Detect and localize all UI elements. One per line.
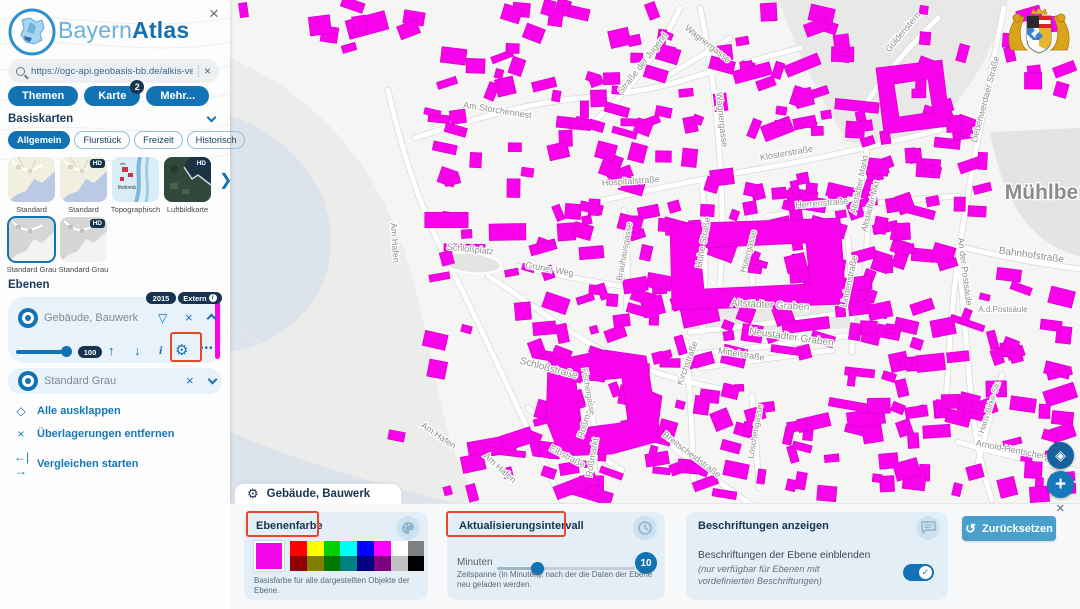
link-label: Überlagerungen entfernen [37,428,175,440]
layer-info-icon[interactable]: i [159,343,162,358]
info-badge-icon: i [209,294,217,302]
basemap-thumb-standard-grau[interactable]: HD [60,217,107,262]
gear-icon: ⚙ [247,486,259,502]
tab-allgemein[interactable]: Allgemein [8,131,70,149]
tab-flurstück[interactable]: Flurstück [74,131,130,149]
basemap-thumb-label: Standard Grau [58,265,110,274]
color-swatch[interactable] [374,541,391,556]
labels-toggle[interactable]: ✓ [903,564,934,581]
color-swatch[interactable] [307,541,324,556]
menu-button-mehr[interactable]: Mehr... [146,86,209,106]
card-title: Ebenenfarbe [256,520,323,532]
extern-badge: Extern i [178,292,222,304]
link-überlagerungen-entfernen[interactable]: ×Überlagerungen entfernen [14,427,175,441]
color-swatch[interactable] [307,556,324,571]
search-bar[interactable]: https://ogc-api.geobasis-bb.de/alkis-ver… [8,59,219,83]
svg-text:tholomä: tholomä [118,185,136,191]
app-title: BayernAtlas [58,17,189,44]
palette-icon [396,516,420,540]
chat-icon [916,516,940,540]
sidebar-close-icon[interactable]: × [209,4,219,24]
color-swatch[interactable] [374,556,391,571]
basemap-tabs: AllgemeinFlurstückFreizeitHistorisch [8,131,245,149]
filter-icon[interactable]: ▽ [158,311,167,325]
panel-tab[interactable]: ⚙ Gebäude, Bauwerk [234,483,402,504]
card-caption: Zeitspanne (in Minuten), nach der die Da… [457,570,657,590]
layer-name: Standard Grau [44,375,116,387]
card-caption: Basisfarbe für alle dargestellten Objekt… [254,576,424,596]
reset-label: Zurücksetzen [982,523,1053,535]
compare-icon: ←|→ [14,450,28,478]
minutes-label: Minuten [457,557,493,568]
expand-layer-icon[interactable] [208,375,218,385]
layer-name: Gebäude, Bauwerk [44,312,138,324]
search-clear-icon[interactable]: × [204,64,211,78]
color-swatch[interactable] [357,556,374,571]
basemap-thumb-label: Standard [6,205,58,214]
color-swatch[interactable] [290,556,307,571]
geolocate-button[interactable]: ◈ [1047,442,1074,469]
opacity-value: 100 [78,346,102,358]
card-ebenenfarbe: Ebenenfarbe Basisfarbe für alle dargeste… [244,512,428,600]
color-swatch[interactable] [340,556,357,571]
search-input[interactable]: https://ogc-api.geobasis-bb.de/alkis-ver… [31,66,193,77]
reset-icon: ↺ [965,521,976,537]
basemap-thumb-label: Topographisch [110,205,162,214]
layer-card-gebaeude-bauwerk: Gebäude, Bauwerk 2015 Extern i ▽ × 100 ↑… [8,297,222,363]
basemap-thumb-luftbildkarte[interactable]: HD [164,157,211,202]
color-swatch[interactable] [340,541,357,556]
basemaps-header: Basiskarten [8,113,73,125]
hd-badge: HD [90,159,105,168]
hd-badge: HD [90,219,105,228]
color-swatch[interactable] [408,541,425,556]
hd-badge: HD [194,159,209,168]
search-divider [198,65,199,77]
move-layer-up-icon[interactable]: ↑ [108,343,115,358]
panel-close-icon[interactable]: × [1056,500,1065,517]
card-title: Aktualisierungsintervall [459,520,584,532]
bayernatlas-logo [8,8,56,56]
color-swatch[interactable] [391,556,408,571]
link-alle-ausklappen[interactable]: ◇Alle ausklappen [14,404,121,418]
toggle-sublabel: (nur verfügbar für Ebenen mit vordefinie… [698,564,878,587]
link-vergleichen-starten[interactable]: ←|→Vergleichen starten [14,450,139,478]
basemap-thumb-label: Standard Grau [6,265,58,274]
remove-overlays-icon: × [14,427,28,441]
basemap-thumb-label: Standard [58,205,110,214]
thumbnails-next-icon[interactable]: ❯ [219,170,232,190]
color-swatch[interactable] [324,556,341,571]
search-icon [16,67,25,76]
layer-color-strip [215,301,220,359]
geolocate-icon: ◈ [1055,447,1066,464]
card-aktualisierungsintervall: Aktualisierungsintervall Minuten 10 Zeit… [447,512,665,600]
expand-all-icon: ◇ [14,404,28,418]
basemap-thumb-label: Luftbildkarte [162,205,214,214]
card-title: Beschriftungen anzeigen [698,520,829,532]
remove-layer-icon[interactable]: × [186,373,194,388]
svg-text:Mühlberg: Mühlberg [1005,181,1080,204]
clock-icon [633,516,657,540]
move-layer-down-icon[interactable]: ↓ [134,343,141,358]
color-swatch[interactable] [290,541,307,556]
plus-icon: + [1055,474,1066,496]
layer-settings-gear-icon[interactable]: ⚙ [175,341,188,359]
remove-layer-icon[interactable]: × [185,310,193,325]
layer-card-standard-grau: Standard Grau × [8,368,222,394]
zoom-in-button[interactable]: + [1047,471,1074,498]
card-beschriftungen: Beschriftungen anzeigen Beschriftungen d… [686,512,948,600]
svg-text:nkt: nkt [120,161,126,166]
color-swatch[interactable] [391,541,408,556]
reset-button[interactable]: ↺ Zurücksetzen [962,516,1056,541]
panel-tab-title: Gebäude, Bauwerk [267,488,371,500]
basemap-thumb-topographisch[interactable]: tholomänkt [112,157,159,202]
layer-more-icon[interactable]: ••• [200,343,214,354]
toggle-knob: ✓ [919,566,932,579]
menu-badge: 2 [130,80,144,94]
toggle-label: Beschriftungen der Ebene einblenden [698,550,870,561]
selected-color-swatch[interactable] [254,541,284,571]
menu-button-karte[interactable]: Karte2 [84,86,140,106]
layer-visibility-icon[interactable] [18,371,38,391]
color-swatch[interactable] [408,556,425,571]
svg-text:A.d.Postsäule: A.d.Postsäule [978,305,1028,314]
tab-freizeit[interactable]: Freizeit [134,131,182,149]
menu-buttons: ThemenKarte2Mehr... [8,86,209,106]
bayernatlas-app: Am StorchennestStraße der JugendWagnerga… [0,0,1080,609]
opacity-slider-thumb[interactable] [61,346,72,357]
tab-historisch[interactable]: Historisch [187,131,246,149]
layer-visibility-icon[interactable] [18,308,38,328]
basemap-thumb-standard[interactable] [8,157,55,202]
color-swatch[interactable] [357,541,374,556]
menu-button-themen[interactable]: Themen [8,86,78,106]
color-swatch[interactable] [324,541,341,556]
link-label: Vergleichen starten [37,458,139,470]
bavaria-coat-of-arms [1003,6,1075,58]
basemap-thumb-standard-grau[interactable] [8,217,55,262]
layers-header: Ebenen [8,279,50,291]
year-badge: 2015 [146,292,176,304]
link-label: Alle ausklappen [37,405,121,417]
sidebar: × BayernAtlas https://ogc-api.geobasis-b… [0,0,230,609]
basemap-thumb-standard[interactable]: HD [60,157,107,202]
color-palette [290,541,424,571]
